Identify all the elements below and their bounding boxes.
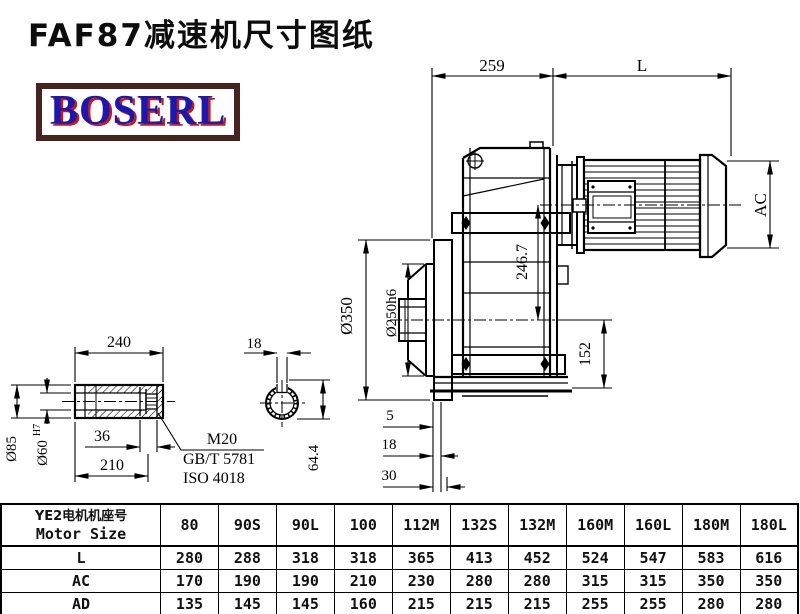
row-label: AC	[1, 570, 161, 593]
dimension-value: 280	[450, 570, 508, 593]
header-label-en: Motor Size	[2, 525, 160, 543]
row-label: L	[1, 546, 161, 570]
motor-size-column-header: 180M	[682, 504, 740, 546]
label-bolt-gb: GB/T 5781	[183, 451, 255, 468]
dimension-lines	[11, 68, 779, 492]
dimension-value: 135	[161, 593, 219, 614]
dim-bore-tol: H7	[32, 424, 43, 436]
dim-210: 210	[100, 457, 124, 474]
motor-size-column-header: 132S	[450, 504, 508, 546]
dimension-value: 190	[218, 570, 276, 593]
motor-size-table: YE2电机机座号 Motor Size 8090S90L100112M132S1…	[0, 503, 799, 614]
dim-keyway-depth: 64.4	[306, 444, 322, 471]
header-label-cn: YE2电机机座号	[2, 508, 160, 525]
dimension-value: 190	[276, 570, 334, 593]
dim-240: 240	[107, 334, 131, 351]
dimension-value: 170	[161, 570, 219, 593]
table-row: AD135145145160215215215255255280280	[1, 593, 798, 614]
dimension-value: 583	[682, 546, 740, 570]
dim-152: 152	[577, 342, 594, 366]
dim-30: 30	[382, 468, 397, 484]
dimension-value: 315	[624, 570, 682, 593]
dimension-value: 547	[624, 546, 682, 570]
dimension-value: 145	[218, 593, 276, 614]
table-body: L280288318318365413452524547583616AC1701…	[1, 546, 798, 614]
motor-size-column-header: 160M	[566, 504, 624, 546]
dimension-value: 160	[334, 593, 392, 614]
dimension-value: 365	[392, 546, 450, 570]
dimension-value: 616	[740, 546, 798, 570]
terminal-box	[588, 181, 635, 233]
dimension-value: 215	[450, 593, 508, 614]
label-bolt-size: M20	[207, 431, 237, 448]
dim-246-7: 246.7	[514, 244, 531, 280]
dimension-value: 210	[334, 570, 392, 593]
dimension-value: 452	[508, 546, 566, 570]
fan-cover	[700, 155, 726, 257]
dimension-value: 215	[392, 593, 450, 614]
motor	[557, 155, 726, 257]
dimension-value: 318	[334, 546, 392, 570]
dimension-value: 524	[566, 546, 624, 570]
label-bolt-iso: ISO 4018	[183, 470, 245, 487]
motor-size-column-header: 112M	[392, 504, 450, 546]
dimension-value: 280	[161, 546, 219, 570]
table-corner-header: YE2电机机座号 Motor Size	[1, 504, 161, 546]
dim-36: 36	[94, 428, 110, 445]
table-header-row: YE2电机机座号 Motor Size 8090S90L100112M132S1…	[1, 504, 798, 546]
motor-size-column-header: 160L	[624, 504, 682, 546]
dimension-value: 215	[508, 593, 566, 614]
dimension-value: 350	[682, 570, 740, 593]
dim-259: 259	[479, 56, 505, 75]
table-row: AC170190190210230280280315315350350	[1, 570, 798, 593]
motor-size-column-header: 90S	[218, 504, 276, 546]
motor-size-column-header: 80	[161, 504, 219, 546]
row-label: AD	[1, 593, 161, 614]
dimension-value: 230	[392, 570, 450, 593]
dimension-value: 280	[740, 593, 798, 614]
dim-bore: Ø60	[35, 440, 51, 466]
dimension-value: 288	[218, 546, 276, 570]
table-row: L280288318318365413452524547583616	[1, 546, 798, 570]
dimension-labels: 259 L AC 246.7 152 Ø350 Ø250h6 5 18 30 2…	[4, 56, 770, 487]
dim-L: L	[637, 56, 647, 75]
dimension-value: 350	[740, 570, 798, 593]
technical-drawing: 259 L AC 246.7 152 Ø350 Ø250h6 5 18 30 2…	[0, 0, 800, 502]
dimension-value: 280	[508, 570, 566, 593]
motor-size-column-header: 132M	[508, 504, 566, 546]
dimension-value: 413	[450, 546, 508, 570]
dimension-value: 315	[566, 570, 624, 593]
dim-spigot: Ø250h6	[384, 288, 400, 337]
dimension-value: 145	[276, 593, 334, 614]
dim-shaft-od: Ø85	[4, 436, 20, 462]
dim-AC: AC	[751, 193, 770, 217]
dim-5: 5	[386, 408, 394, 424]
dim-flange-od: Ø350	[337, 297, 356, 335]
drawing-page: FAF87减速机尺寸图纸 BOSERL	[0, 0, 800, 614]
dim-keyway-width: 18	[247, 336, 262, 352]
motor-size-column-header: 90L	[276, 504, 334, 546]
dimension-value: 255	[566, 593, 624, 614]
motor-size-column-header: 100	[334, 504, 392, 546]
dimension-value: 255	[624, 593, 682, 614]
dim-18: 18	[382, 437, 397, 453]
dimension-value: 318	[276, 546, 334, 570]
motor-size-column-header: 180L	[740, 504, 798, 546]
dimension-value: 280	[682, 593, 740, 614]
